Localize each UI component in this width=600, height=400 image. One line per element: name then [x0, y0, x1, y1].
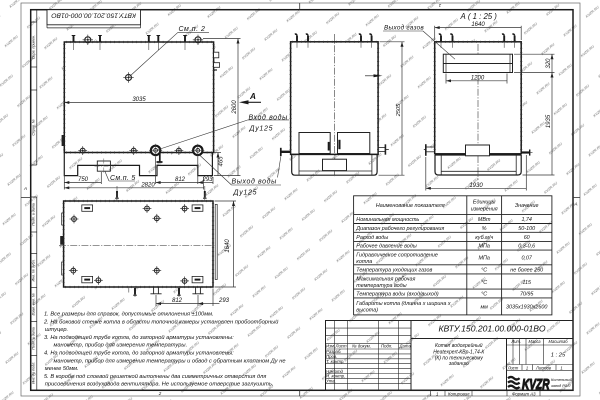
svg-text:Номинальная мощность: Номинальная мощность — [356, 217, 419, 223]
svg-text:320: 320 — [546, 58, 552, 69]
svg-text:1200: 1200 — [471, 76, 485, 82]
svg-text:Масса: Масса — [528, 339, 541, 344]
svg-text:Ду125: Ду125 — [249, 125, 274, 132]
svg-text:1: 1 — [560, 366, 562, 371]
svg-text:Справ. №: Справ. № — [32, 119, 36, 135]
svg-text:Инв. № дубл.: Инв. № дубл. — [32, 259, 36, 281]
svg-text:1: 1 — [526, 366, 528, 371]
svg-text:115: 115 — [522, 280, 532, 286]
svg-text:высота): высота) — [356, 308, 378, 314]
svg-text:Масштаб: Масштаб — [548, 339, 568, 344]
svg-text:Максимальная рабочая: Максимальная рабочая — [356, 277, 415, 283]
svg-text:3. На подводящей трубе котла,: 3. На подводящей трубе котла, до запорно… — [44, 334, 234, 341]
svg-text:менее 50мм.: менее 50мм. — [45, 366, 79, 372]
svg-text:1640: 1640 — [471, 22, 485, 28]
svg-text:Расход воды: Расход воды — [356, 235, 388, 241]
svg-text:А ( 1 : 25 ): А ( 1 : 25 ) — [459, 12, 497, 21]
svg-text:А: А — [23, 186, 27, 191]
svg-text:штуцер.: штуцер. — [45, 327, 68, 333]
svg-text:Температура уходящих газов: Температура уходящих газов — [356, 267, 432, 273]
svg-text:См.п. 5: См.п. 5 — [110, 175, 136, 182]
svg-text:присоединения воздуховода вент: присоединения воздуховода вентилятора. Н… — [45, 382, 274, 388]
svg-text:4. На подводящей трубе котла,: 4. На подводящей трубе котла, до запорно… — [44, 350, 234, 357]
svg-text:°С: °С — [481, 267, 487, 273]
svg-text:50-100: 50-100 — [518, 226, 535, 232]
svg-text:Подп.: Подп. — [381, 344, 392, 349]
svg-text:5. В коробе под слоевой решетк: 5. В коробе под слоевой решеткой выполне… — [44, 373, 266, 380]
svg-text:0,3-0,6: 0,3-0,6 — [518, 244, 535, 250]
svg-text:Диапазон рабочего регулировани: Диапазон рабочего регулирования — [355, 226, 444, 232]
svg-text:А: А — [249, 92, 256, 101]
svg-text:Подп. и дата: Подп. и дата — [32, 203, 36, 226]
svg-text:Единицы: Единицы — [473, 199, 496, 205]
svg-text:Подп. и дата: Подп. и дата — [32, 327, 36, 350]
svg-text:2. На боковой стенке котла в о: 2. На боковой стенке котла в области топ… — [43, 318, 279, 325]
svg-text:Наименование показателя: Наименование показателя — [376, 203, 445, 209]
svg-text:293: 293 — [201, 177, 213, 183]
svg-text:293: 293 — [218, 298, 230, 304]
svg-text:1930: 1930 — [469, 183, 483, 189]
svg-text:Габариты котла (длинна х ширин: Габариты котла (длинна х ширина х — [356, 301, 451, 307]
svg-text:°С: °С — [481, 280, 487, 286]
svg-text:2: 2 — [158, 391, 162, 396]
svg-text:котла: котла — [356, 259, 372, 265]
svg-text:60: 60 — [524, 235, 530, 241]
svg-text:Листов: Листов — [535, 366, 552, 371]
svg-text:Рабочее давление воды: Рабочее давление воды — [356, 244, 416, 250]
svg-text:750: 750 — [78, 177, 89, 183]
svg-text:Дата: Дата — [399, 344, 412, 349]
svg-text:812: 812 — [172, 298, 183, 304]
svg-text:Т. контр.: Т. контр. — [326, 359, 345, 364]
svg-text:°С: °С — [481, 292, 487, 298]
svg-text:не более 250: не более 250 — [510, 267, 543, 273]
svg-text:МВт: МВт — [478, 217, 491, 223]
svg-text:Вход воды: Вход воды — [249, 113, 289, 121]
svg-text:2505: 2505 — [396, 103, 402, 117]
svg-text:См.п. 2: См.п. 2 — [179, 26, 206, 33]
svg-text:Котельный: Котельный — [551, 377, 573, 382]
svg-text:Инв. № подл.: Инв. № подл. — [32, 362, 36, 384]
svg-text:Лист: Лист — [507, 366, 519, 371]
svg-text:Формат А3: Формат А3 — [512, 391, 536, 396]
svg-text:Лит.: Лит. — [510, 339, 521, 344]
svg-text:2820: 2820 — [140, 182, 155, 188]
svg-text:завод РЭП: завод РЭП — [550, 383, 571, 388]
svg-text:Выход газов: Выход газов — [384, 23, 424, 31]
svg-text:Утв.: Утв. — [326, 379, 336, 384]
svg-text:температура воды: температура воды — [356, 283, 406, 289]
svg-text:3035х1930х2600: 3035х1930х2600 — [506, 305, 547, 311]
svg-text:заданию: заданию — [448, 361, 469, 367]
svg-text:3035: 3035 — [132, 97, 146, 103]
svg-text:1. Все размеры для справок, до: 1. Все размеры для справок, допустимые о… — [44, 312, 214, 318]
svg-text:1640: 1640 — [225, 239, 231, 253]
svg-text:Котел водогрейный: Котел водогрейный — [435, 342, 483, 349]
svg-text:КВТУ.150.201.00.000-01ВО: КВТУ.150.201.00.000-01ВО — [51, 12, 136, 19]
svg-text:70/95: 70/95 — [520, 292, 534, 298]
svg-text:мм: мм — [480, 305, 488, 311]
svg-text:465: 465 — [219, 156, 225, 167]
svg-text:Гидравлическое сопротивление: Гидравлическое сопротивление — [356, 252, 438, 258]
svg-text:Взам. инв. №: Взам. инв. № — [32, 293, 36, 315]
svg-text:1935: 1935 — [546, 114, 552, 128]
svg-text:Изм.: Изм. — [326, 344, 335, 349]
svg-text:куб.м/ч: куб.м/ч — [475, 235, 493, 241]
svg-text:МПа: МПа — [478, 244, 489, 250]
svg-text:измерения: измерения — [471, 206, 498, 212]
svg-text:Выход воды: Выход воды — [232, 177, 278, 185]
svg-text:Перв. примен.: Перв. примен. — [32, 35, 36, 59]
svg-text:%: % — [482, 226, 487, 232]
svg-text:Лист: Лист — [335, 344, 347, 349]
svg-text:А: А — [573, 202, 577, 207]
svg-text:Копировал: Копировал — [448, 391, 470, 396]
svg-text:1 : 25: 1 : 25 — [551, 353, 566, 359]
svg-text:Температура воды (вход/выход): Температура воды (вход/выход) — [356, 292, 439, 298]
svg-text:манометр, прибор для измерения: манометр, прибор для измерения температу… — [54, 358, 286, 364]
svg-text:2600: 2600 — [232, 100, 238, 115]
svg-text:манометр, прибор для измерения: манометр, прибор для измерения температу… — [54, 343, 188, 349]
svg-text:Значение: Значение — [515, 203, 539, 209]
svg-text:0,07: 0,07 — [521, 256, 532, 262]
svg-text:1,74: 1,74 — [521, 217, 532, 223]
svg-text:Ду125: Ду125 — [233, 190, 258, 197]
svg-text:КВТУ.150.201.00.000-01ВО: КВТУ.150.201.00.000-01ВО — [438, 324, 545, 334]
svg-text:МПа: МПа — [478, 256, 489, 262]
svg-text:№ докум.: № докум. — [352, 344, 371, 349]
svg-text:812: 812 — [175, 177, 186, 183]
